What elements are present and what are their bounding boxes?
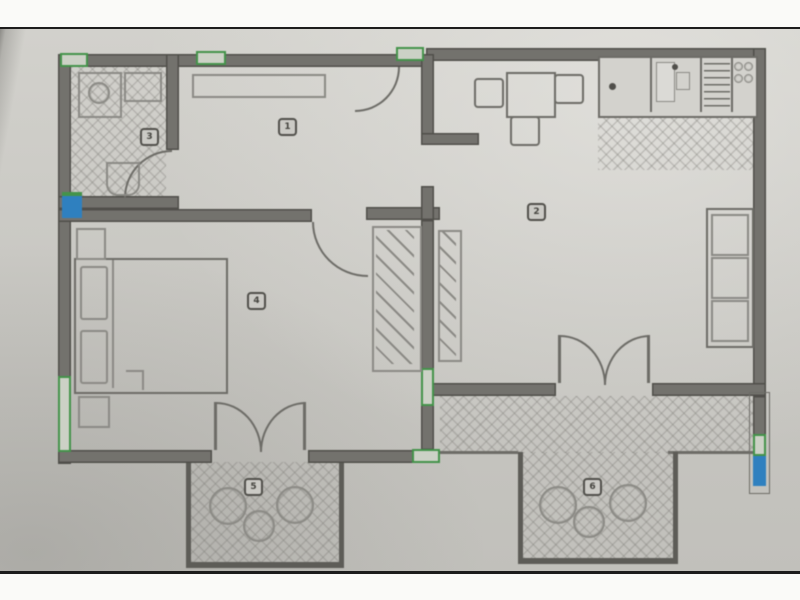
floor-plan-photo: 1 2 3 4 5 6 [0, 0, 800, 600]
dining-table [506, 72, 556, 118]
stove-burner-1 [734, 62, 743, 71]
dining-chair-right [554, 74, 584, 104]
wall-bathroom-vertical [166, 54, 179, 150]
sink-faucet [672, 64, 678, 70]
room-badge-terrace-left: 5 [244, 478, 263, 496]
wall-bedroom-top-a [58, 209, 312, 222]
counter-divider-2 [700, 58, 702, 112]
wall-hall-right-lower [421, 186, 434, 220]
shelf-cabinet-cell-3 [711, 300, 749, 342]
terrace-right-chair-2 [609, 484, 647, 522]
wall-stub-entry [421, 133, 479, 145]
terrace-left-table [243, 510, 275, 542]
terrace-right-table [573, 506, 605, 538]
dining-chair-bottom [510, 116, 540, 146]
terrace-right-chair-1 [539, 486, 577, 524]
window-marker-top-1 [60, 53, 88, 67]
wall-bottom-left-a [58, 450, 212, 463]
room-badge-hall: 1 [278, 118, 297, 136]
bed-mattress-line [112, 260, 114, 388]
terrace-left-chair-2 [276, 486, 314, 524]
room-badge-living: 2 [527, 203, 546, 221]
wardrobe-hatch [376, 230, 414, 364]
window-marker-right-bottom [753, 434, 766, 456]
shelf-cabinet-cell-1 [711, 214, 749, 256]
room-badge-bedroom: 4 [247, 292, 266, 310]
junction-marker-blue-right [753, 456, 766, 486]
room-badge-terrace-right: 6 [583, 478, 602, 496]
dining-chair-left [474, 78, 504, 108]
terrace-right-strip-floor [440, 396, 753, 453]
building-plan: 1 2 3 4 5 6 [0, 0, 800, 600]
window-marker-left-wall [58, 376, 71, 452]
counter-divider-1 [650, 58, 652, 112]
wall-top-left-unit [58, 54, 426, 67]
terrace-right-parapet-right [668, 451, 753, 454]
junction-marker-blue-left [62, 192, 82, 218]
shelf-cabinet-cell-2 [711, 257, 749, 299]
toilet [106, 162, 140, 196]
terrace-left-chair-1 [209, 487, 247, 525]
window-marker-top-2 [196, 51, 226, 65]
nightstand-bottom [78, 396, 110, 428]
bathroom-sink [124, 72, 162, 102]
cabinet-knob [609, 83, 616, 90]
wall-hall-right-upper [421, 54, 434, 135]
window-marker-bottom [412, 449, 440, 463]
stove-burner-4 [744, 74, 753, 83]
terrace-right-parapet-left [440, 451, 518, 454]
wall-bottom-right-a [426, 383, 556, 396]
room-badge-bathroom: 3 [140, 128, 159, 146]
bed-blanket-fold [126, 370, 144, 390]
dish-rack [704, 63, 730, 109]
hall-closet [192, 74, 326, 98]
bed-pillow-top [80, 266, 108, 320]
washing-machine-drum [88, 82, 110, 104]
wall-divider-bedroom-living [421, 220, 434, 450]
counter-divider-3 [731, 58, 733, 112]
bed-pillow-bottom [80, 330, 108, 384]
stove-burner-3 [734, 74, 743, 83]
sink-drainer [676, 72, 690, 90]
radiator-hatch [440, 232, 456, 356]
stove-burner-2 [744, 62, 753, 71]
window-marker-entry [396, 47, 424, 61]
window-marker-divider [421, 368, 434, 406]
nightstand-top [76, 228, 106, 260]
